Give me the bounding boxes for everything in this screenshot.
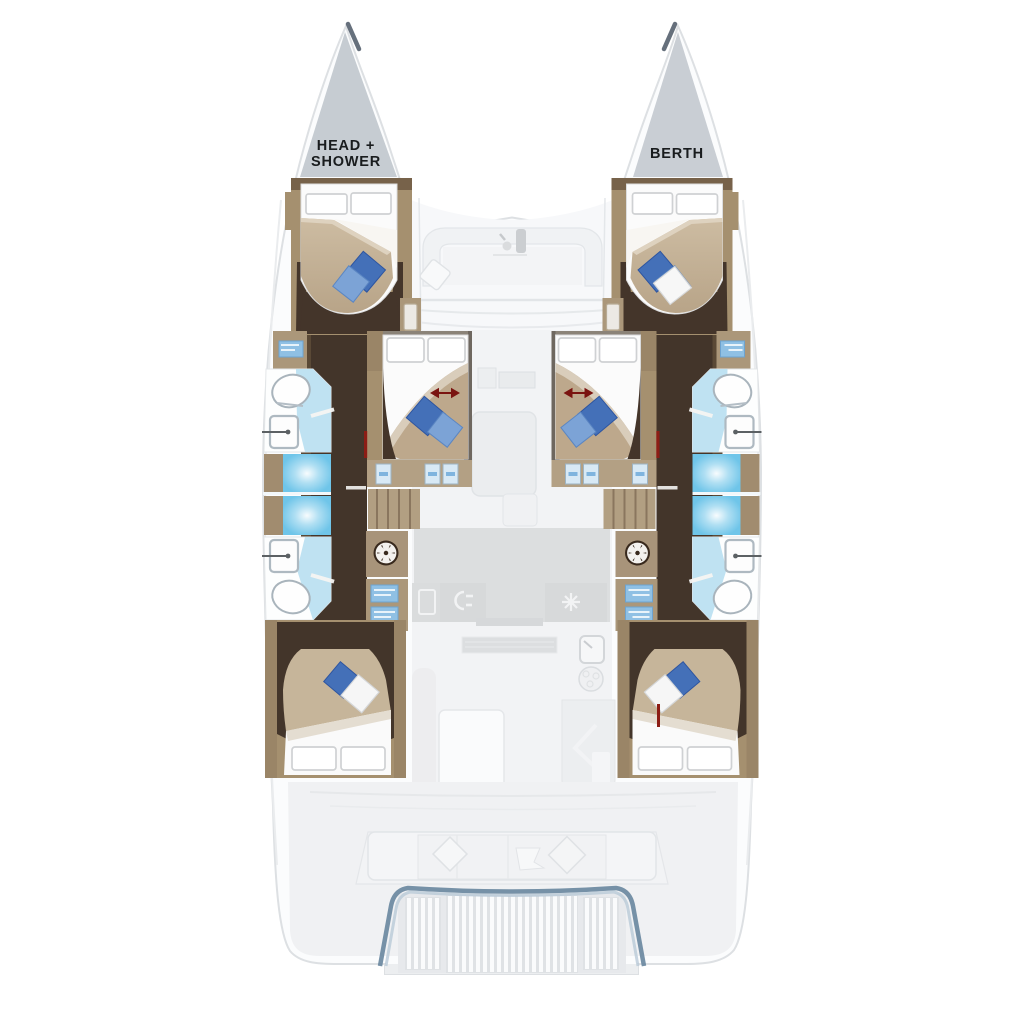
svg-text:HEAD +: HEAD +	[317, 138, 375, 154]
svg-text:SHOWER: SHOWER	[311, 154, 381, 170]
svg-text:BERTH: BERTH	[650, 146, 704, 162]
